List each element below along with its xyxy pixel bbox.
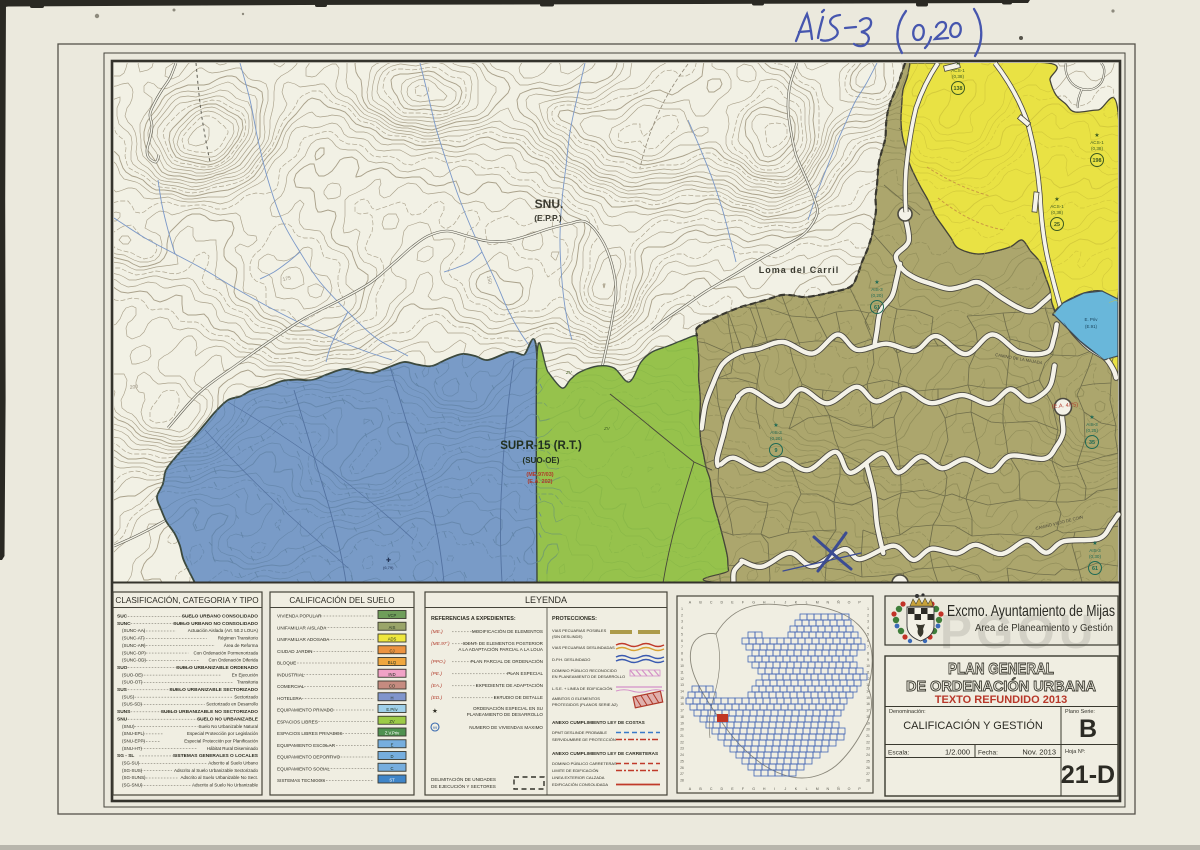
svg-text:C: C [390,766,393,771]
svg-text:99: 99 [433,725,438,730]
svg-text:Loma del Carril: Loma del Carril [759,265,840,275]
svg-text:ANEXO CUMPLIMIENTO LEY DE CARR: ANEXO CUMPLIMIENTO LEY DE CARRETERAS [552,751,658,756]
svg-text:J: J [785,601,787,605]
svg-text:G: G [752,787,755,791]
svg-text:IDENT. DE ELEMENTOS POSTERIOR: IDENT. DE ELEMENTOS POSTERIOR [463,641,544,646]
svg-text:PROTECCIONES:: PROTECCIONES: [552,616,597,622]
svg-text:(SUNC-AR): (SUNC-AR) [122,643,146,648]
svg-text:I: I [774,787,775,791]
svg-text:35: 35 [1089,440,1095,446]
svg-text:ANEXO CUMPLIMIENTO LEY DE COST: ANEXO CUMPLIMIENTO LEY DE COSTAS [552,720,645,725]
svg-text:Adscrito al Suelo Urbanizable: Adscrito al Suelo Urbanizable Sectorizad… [174,768,259,773]
svg-text:PLANEAMIENTO DE DESARROLLO: PLANEAMIENTO DE DESARROLLO [467,712,544,717]
svg-text:★: ★ [773,422,778,429]
svg-text:Adscrito al Suelo Urbano: Adscrito al Suelo Urbano [208,761,258,766]
svg-text:D: D [390,754,393,759]
svg-text:17: 17 [680,709,684,713]
svg-text:(SUO-OT): (SUO-OT) [122,680,143,685]
svg-text:(E.A. 202): (E.A. 202) [527,479,552,485]
svg-text:L: L [806,787,808,791]
svg-text:DELIMITACIÓN DE UNIDADES: DELIMITACIÓN DE UNIDADES [431,776,496,782]
svg-text:ORDENACIÓN ESPECIAL EN SU: ORDENACIÓN ESPECIAL EN SU [473,705,543,711]
svg-text:Especial Protección por Planif: Especial Protección por Planificación [184,738,258,743]
svg-text:(SNU-EPL): (SNU-EPL) [122,731,145,736]
svg-text:AIS: AIS [389,625,396,630]
svg-text:L.S.E. + LINEA DE EDIFICACIÓN: L.S.E. + LINEA DE EDIFICACIÓN [552,686,612,691]
svg-text:22: 22 [866,740,870,744]
svg-text:(ME.97/03): (ME.97/03) [526,472,553,478]
svg-text:8: 8 [681,652,683,656]
svg-text:(SNU): (SNU) [122,724,135,729]
svg-text:E. Priv: E. Priv [1085,317,1099,322]
svg-text:C: C [710,787,713,791]
svg-text:PLAN GENERAL: PLAN GENERAL [948,661,1054,678]
svg-text:(SUNC-AT): (SUNC-AT) [122,636,145,641]
svg-text:Fecha:: Fecha: [978,750,998,757]
svg-text:27: 27 [680,772,684,776]
svg-text:✚: ✚ [386,557,391,564]
svg-text:ACS-1: ACS-1 [1050,204,1064,209]
svg-text:(SG-SU): (SG-SU) [122,761,140,766]
svg-text:ST: ST [389,778,395,783]
svg-text:11: 11 [680,671,684,675]
svg-text:PLAN ESPECIAL: PLAN ESPECIAL [507,671,543,676]
svg-text:(ME.): (ME.) [431,629,443,635]
svg-text:CALIFICACIÓN DEL SUELO: CALIFICACIÓN DEL SUELO [289,595,394,605]
svg-text:G: G [752,601,755,605]
svg-text:CIUDAD JARDIN: CIUDAD JARDIN [277,649,312,654]
svg-text:EQUIPAMIENTO ESCOLAR: EQUIPAMIENTO ESCOLAR [277,743,336,748]
svg-text:★: ★ [874,279,879,286]
svg-text:SUC: SUC [117,614,128,620]
svg-text:13: 13 [680,683,684,687]
svg-text:7: 7 [681,645,683,649]
svg-text:(0,25): (0,25) [1086,428,1098,433]
svg-text:Transitoria: Transitoria [237,680,259,685]
svg-text:26: 26 [866,766,870,770]
svg-text:DE EJECUCIÓN Y SECTORES: DE EJECUCIÓN Y SECTORES [431,783,496,789]
svg-text:(ED.): (ED.) [431,695,443,701]
svg-text:(SUNC-OP): (SUNC-OP) [122,650,146,655]
svg-text:ACS-1: ACS-1 [951,68,965,73]
svg-text:SUELO URBANO CONSOLIDADO: SUELO URBANO CONSOLIDADO [182,614,258,620]
svg-text:E: E [391,742,394,747]
svg-text:(SUS-SD): (SUS-SD) [122,702,143,707]
svg-text:16: 16 [866,702,870,706]
svg-text:CALIFICACIÓN Y GESTIÓN: CALIFICACIÓN Y GESTIÓN [903,719,1043,732]
svg-text:(0,30): (0,30) [1089,554,1101,559]
svg-text:Adscrito al Suelo Urbanizable: Adscrito al Suelo Urbanizable No Sect. [180,775,258,780]
svg-text:Denominación:: Denominación: [889,709,926,715]
svg-text:CJ: CJ [389,648,394,653]
svg-text:DOMINIO PÚBLICO CARRETERAS: DOMINIO PÚBLICO CARRETERAS [552,761,617,766]
svg-text:22: 22 [680,740,684,744]
svg-text:(0,38): (0,38) [952,74,964,79]
svg-text:Adscrito al Suelo No Urbanizab: Adscrito al Suelo No Urbanizable [192,783,259,788]
svg-text:EXPEDIENTE DE ADAPTACIÓN: EXPEDIENTE DE ADAPTACIÓN [476,682,543,688]
svg-text:SUELO URBANO NO CONSOLIDADO: SUELO URBANO NO CONSOLIDADO [173,621,258,627]
svg-text:Hábitat Rural Diseminado: Hábitat Rural Diseminado [207,746,259,751]
svg-text:DOMINIO PÚBLICO RECONOCIDO: DOMINIO PÚBLICO RECONOCIDO [552,668,617,673]
svg-text:AIS-3: AIS-3 [770,430,782,435]
svg-text:O: O [848,601,851,605]
svg-text:(SUO-OE): (SUO-OE) [523,456,560,465]
svg-text:EDIFICACIÓN CONSOLIDADA: EDIFICACIÓN CONSOLIDADA [552,782,608,787]
svg-text:AIS-3: AIS-3 [1089,548,1101,553]
svg-text:Área de Reforma: Área de Reforma [224,642,259,648]
svg-text:Z.V.Priv: Z.V.Priv [385,731,400,736]
svg-text:10: 10 [680,664,684,668]
svg-text:D: D [720,601,723,605]
svg-text:61: 61 [874,305,880,311]
svg-text:(PE.): (PE.) [431,671,442,677]
svg-text:ZV: ZV [389,719,395,724]
svg-text:(SIN DESLINDE): (SIN DESLINDE) [552,634,583,639]
svg-text:AIS-3: AIS-3 [871,287,883,292]
svg-text:8: 8 [867,652,869,656]
svg-text:(E.91): (E.91) [1085,324,1097,329]
svg-text:1: 1 [681,607,683,611]
svg-text:(E.P.P.): (E.P.P.) [534,213,562,223]
svg-text:En Ejecución: En Ejecución [232,672,259,677]
svg-text:PROTEGIDOS (PLANOS SERIE A2): PROTEGIDOS (PLANOS SERIE A2) [552,702,618,707]
svg-text:ESTUDIO DE DETALLE: ESTUDIO DE DETALLE [494,695,543,700]
svg-text:28: 28 [866,779,870,783]
svg-text:PLAN PARCIAL DE ORDENACIÓN: PLAN PARCIAL DE ORDENACIÓN [471,658,544,664]
svg-text:198: 198 [1093,158,1102,164]
svg-text:SUELO URBANIZABLE SECTORIZADO: SUELO URBANIZABLE SECTORIZADO [169,687,258,693]
svg-text:★: ★ [1092,540,1097,547]
svg-text:SUELO NO URBANIZABLE: SUELO NO URBANIZABLE [197,716,259,722]
svg-text:5: 5 [681,632,683,636]
svg-text:10: 10 [866,664,870,668]
svg-text:SUELO URBANIZABLE NO SECTORIZA: SUELO URBANIZABLE NO SECTORIZADO [161,709,258,715]
svg-text:J: J [785,787,787,791]
svg-text:CO: CO [389,684,396,689]
svg-text:SUNS: SUNS [117,709,131,715]
svg-text:ADS: ADS [388,637,397,642]
svg-text:SUS: SUS [117,687,128,693]
svg-text:SNU: SNU [117,716,128,722]
svg-text:3: 3 [867,620,869,624]
svg-text:VIAS PECUARIAS POSIBLES: VIAS PECUARIAS POSIBLES [552,628,607,633]
svg-text:2: 2 [867,613,869,617]
svg-text:AMBITOS O ELEMENTOS: AMBITOS O ELEMENTOS [552,696,600,701]
svg-text:23: 23 [680,747,684,751]
svg-text:Actuación Aislada (Art. 50.2 L: Actuación Aislada (Art. 50.2 LOUA) [188,628,259,633]
svg-text:Ñ: Ñ [837,786,840,791]
svg-text:M: M [816,787,819,791]
svg-text:EQUIPAMIENTO DEPORTIVO: EQUIPAMIENTO DEPORTIVO [277,755,340,760]
svg-text:M: M [816,601,819,605]
svg-text:9: 9 [681,658,683,662]
svg-text:(0,38): (0,38) [1091,146,1103,151]
svg-text:D.P.H. DESLINDADO: D.P.H. DESLINDADO [552,657,590,662]
svg-text:L: L [806,601,808,605]
svg-text:5: 5 [867,632,869,636]
svg-text:24: 24 [866,753,870,757]
svg-text:LIMITE DE EDIFICACIÓN: LIMITE DE EDIFICACIÓN [552,768,599,773]
svg-text:7: 7 [867,645,869,649]
svg-text:4: 4 [681,626,683,630]
svg-text:SUNC: SUNC [117,621,131,627]
svg-text:23: 23 [866,747,870,751]
svg-text:26: 26 [680,766,684,770]
svg-text:9: 9 [867,658,869,662]
svg-text:18: 18 [680,715,684,719]
svg-text:VCP: VCP [388,613,397,618]
svg-text:21: 21 [866,734,870,738]
svg-text:B: B [1079,715,1097,743]
svg-text:25: 25 [866,759,870,763]
svg-text:25: 25 [680,759,684,763]
svg-text:(SUNC-AA): (SUNC-AA) [122,628,146,633]
svg-text:MODIFICACIÓN DE ELEMENTOS: MODIFICACIÓN DE ELEMENTOS [472,628,543,634]
svg-text:ESPACIOS LIBRES PRIVADOS: ESPACIOS LIBRES PRIVADOS [277,731,342,736]
svg-text:I: I [774,601,775,605]
svg-text:(SNU-HT): (SNU-HT) [122,746,142,751]
svg-text:(0,20): (0,20) [871,293,883,298]
svg-text:(0,20): (0,20) [770,436,782,441]
svg-text:Suelo No Urbanizable Natural: Suelo No Urbanizable Natural [198,724,258,729]
svg-text:6: 6 [681,639,683,643]
svg-text:1: 1 [867,607,869,611]
svg-text:ESPACIOS LIBRES: ESPACIOS LIBRES [277,719,318,724]
svg-text:N: N [826,787,829,791]
svg-text:15: 15 [680,696,684,700]
svg-text:20: 20 [680,728,684,732]
svg-text:Excmo. Ayuntamiento de Mijas: Excmo. Ayuntamiento de Mijas [947,603,1115,620]
svg-text:REFERENCIAS A EXPEDIENTES:: REFERENCIAS A EXPEDIENTES: [431,616,516,622]
svg-text:COMERCIAL: COMERCIAL [277,684,305,689]
svg-text:BLQ: BLQ [388,660,397,665]
svg-text:4: 4 [867,626,869,630]
svg-text:(PPO.): (PPO.) [431,659,446,665]
svg-text:27: 27 [866,772,870,776]
svg-text:SG - SL: SG - SL [117,753,134,759]
svg-text:24: 24 [680,753,684,757]
svg-text:15: 15 [866,696,870,700]
svg-text:E.Priv: E.Priv [386,707,398,712]
svg-text:14: 14 [680,690,684,694]
svg-text:A LA ADAPTACIÓN PARCIAL A LA L: A LA ADAPTACIÓN PARCIAL A LA LOUA [458,646,544,652]
svg-text:NUMERO DE VIVIENDAS MAXIMO: NUMERO DE VIVIENDAS MAXIMO [469,725,543,730]
svg-text:(EA.): (EA.) [431,683,442,689]
svg-text:(SG-SUS): (SG-SUS) [122,768,143,773]
svg-text:(SG-SUNS): (SG-SUNS) [122,775,146,780]
svg-text:Régimen Transitorio: Régimen Transitorio [218,636,259,641]
svg-text:ZV: ZV [603,426,611,431]
svg-text:(6,79): (6,79) [383,565,394,570]
svg-text:★: ★ [432,707,438,715]
svg-text:SUELO URBANIZABLE ORDENADO: SUELO URBANIZABLE ORDENADO [176,665,258,671]
svg-text:16: 16 [680,702,684,706]
svg-text:ACS-1: ACS-1 [1090,140,1104,145]
svg-text:Ñ: Ñ [837,600,840,605]
svg-text:2: 2 [681,613,683,617]
svg-text:138: 138 [954,86,963,92]
svg-text:N: N [826,601,829,605]
svg-text:SISTEMAS GENERALES O LOCALES: SISTEMAS GENERALES O LOCALES [173,753,259,759]
svg-text:SERVIDUMBRE DE PROTECCIÓN: SERVIDUMBRE DE PROTECCIÓN [552,737,616,742]
svg-text:28: 28 [680,779,684,783]
svg-text:Hoja Nº:: Hoja Nº: [1065,748,1086,755]
svg-text:SUO: SUO [117,665,128,671]
svg-text:H: H [390,695,393,700]
svg-text:LEYENDA: LEYENDA [525,595,567,605]
svg-text:Especial Protección por Legisl: Especial Protección por Legislación [187,731,259,736]
svg-text:BLOQUE: BLOQUE [277,661,296,666]
svg-text:ZV: ZV [565,370,573,375]
svg-text:Area de Planeamiento y Gestión: Area de Planeamiento y Gestión [975,622,1113,634]
svg-text:DE ORDENACIÓN URBANA: DE ORDENACIÓN URBANA [906,677,1096,695]
svg-text:LINEA EXTERIOR CALZADA: LINEA EXTERIOR CALZADA [552,775,605,780]
svg-text:1/2.000: 1/2.000 [945,748,970,757]
svg-text:★: ★ [1094,132,1099,139]
svg-text:SUP.R-15 (R.T.): SUP.R-15 (R.T.) [500,440,582,452]
svg-text:Sectorizado en Desarrollo: Sectorizado en Desarrollo [206,702,258,707]
svg-text:(SUO-OE): (SUO-OE) [122,672,143,677]
svg-text:9: 9 [775,448,778,454]
svg-text:3: 3 [681,620,683,624]
svg-text:EN PLANEAMIENTO DE DESARROLLO: EN PLANEAMIENTO DE DESARROLLO [552,674,625,679]
svg-text:17: 17 [866,709,870,713]
svg-text:(SUS): (SUS) [122,694,135,699]
svg-text:Escala:: Escala: [888,750,910,757]
svg-text:12: 12 [680,677,684,681]
svg-text:VIAS PECUARIAS DESLINDADAS: VIAS PECUARIAS DESLINDADAS [552,645,615,650]
svg-text:21-D: 21-D [1061,761,1115,789]
svg-text:★: ★ [1054,196,1059,203]
svg-text:19: 19 [680,721,684,725]
svg-text:D: D [720,787,723,791]
svg-text:Nov. 2013: Nov. 2013 [1022,748,1056,757]
svg-text:Sectorizado: Sectorizado [234,694,258,699]
svg-text:AIS-3: AIS-3 [1086,422,1098,427]
svg-text:UNIFAMILIAR AISLADA: UNIFAMILIAR AISLADA [277,625,327,630]
svg-text:IND: IND [388,672,395,677]
svg-text:21: 21 [680,734,684,738]
svg-text:(ME.97´): (ME.97´) [431,641,450,647]
svg-text:CLASIFICACIÓN, CATEGORIA Y TIP: CLASIFICACIÓN, CATEGORIA Y TIPO [115,595,258,605]
svg-text:61: 61 [1092,566,1098,572]
svg-text:25: 25 [1054,222,1060,228]
svg-text:TEXTO REFUNDIDO 2013: TEXTO REFUNDIDO 2013 [935,694,1067,706]
svg-text:(0,38): (0,38) [1051,210,1063,215]
svg-text:Con Ordenación Pormenorizada: Con Ordenación Pormenorizada [193,650,258,655]
svg-text:★: ★ [1089,414,1094,421]
svg-text:20: 20 [866,728,870,732]
svg-text:Con Ordenación Diferida: Con Ordenación Diferida [208,658,258,663]
svg-text:(SNU-EPP): (SNU-EPP) [122,738,146,743]
svg-text:(SUNC-OD): (SUNC-OD) [122,658,146,663]
svg-text:H: H [763,787,766,791]
svg-text:SNU.: SNU. [535,197,564,211]
svg-text:O: O [848,787,851,791]
svg-text:(SG-SNU): (SG-SNU) [122,783,143,788]
svg-text:C: C [710,601,713,605]
svg-text:DPMT DESLINDE PROBABLE: DPMT DESLINDE PROBABLE [552,730,607,735]
